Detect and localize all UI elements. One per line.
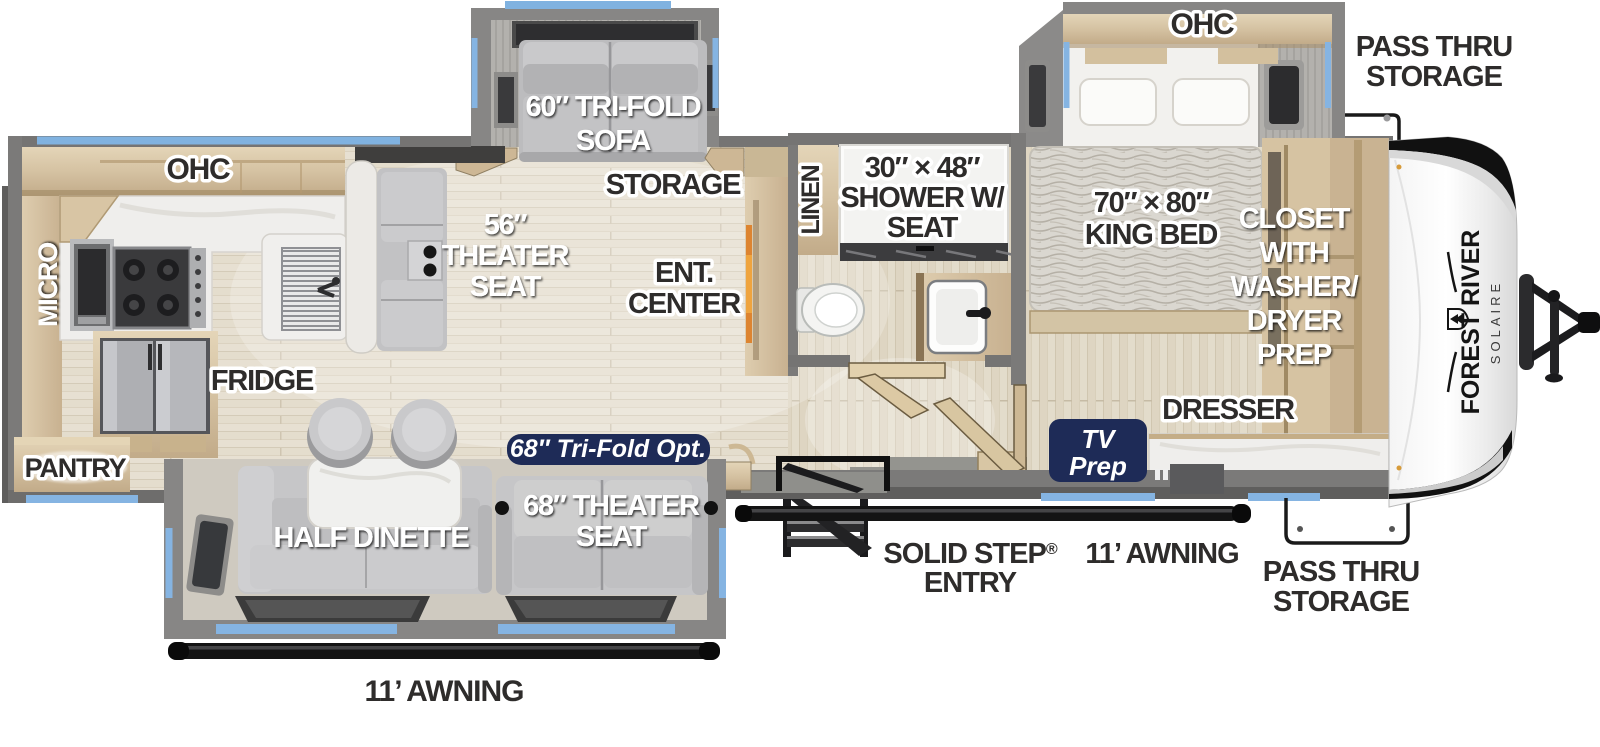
svg-text:SEAT: SEAT: [470, 271, 542, 303]
svg-text:Prep: Prep: [1069, 451, 1127, 481]
svg-text:ENTRY: ENTRY: [924, 567, 1017, 599]
svg-text:SOFA: SOFA: [576, 125, 651, 157]
svg-text:SOLID STEP®: SOLID STEP®: [883, 538, 1057, 570]
svg-text:CENTER: CENTER: [628, 288, 741, 320]
svg-text:60″ TRI-FOLD: 60″ TRI-FOLD: [525, 91, 700, 123]
svg-text:HALF DINETTE: HALF DINETTE: [273, 522, 469, 554]
svg-text:WASHER/: WASHER/: [1231, 271, 1359, 303]
svg-text:WITH: WITH: [1259, 237, 1328, 269]
svg-text:PASS THRU: PASS THRU: [1356, 31, 1512, 63]
svg-text:TV: TV: [1081, 424, 1117, 454]
svg-text:SOLAIRE: SOLAIRE: [1488, 280, 1503, 364]
svg-text:CLOSET: CLOSET: [1239, 203, 1351, 235]
svg-text:OHC: OHC: [166, 153, 230, 186]
svg-text:LINEN: LINEN: [797, 165, 825, 234]
svg-text:KING BED: KING BED: [1085, 219, 1217, 251]
svg-text:68″ Tri-Fold Opt.: 68″ Tri-Fold Opt.: [510, 435, 706, 463]
svg-text:STORAGE: STORAGE: [1366, 61, 1503, 93]
svg-text:11’ AWNING: 11’ AWNING: [365, 675, 524, 708]
svg-text:SEAT: SEAT: [576, 521, 648, 553]
svg-text:STORAGE: STORAGE: [1273, 586, 1410, 618]
svg-text:PANTRY: PANTRY: [25, 453, 127, 483]
svg-text:70″ × 80″: 70″ × 80″: [1094, 187, 1210, 219]
svg-text:PASS THRU: PASS THRU: [1263, 556, 1419, 588]
svg-text:OHC: OHC: [1170, 8, 1234, 41]
svg-text:DRYER: DRYER: [1247, 305, 1343, 337]
svg-text:56″: 56″: [484, 209, 528, 241]
svg-text:11’ AWNING: 11’ AWNING: [1085, 538, 1238, 570]
svg-text:SEAT: SEAT: [887, 212, 959, 244]
svg-text:PREP: PREP: [1257, 339, 1332, 371]
svg-text:MICRO: MICRO: [33, 243, 63, 327]
svg-text:FRIDGE: FRIDGE: [211, 365, 314, 397]
svg-text:DRESSER: DRESSER: [1162, 394, 1295, 426]
svg-text:STORAGE: STORAGE: [606, 169, 741, 201]
svg-text:68″ THEATER: 68″ THEATER: [523, 490, 700, 522]
svg-text:THEATER: THEATER: [442, 240, 570, 272]
svg-text:ENT.: ENT.: [655, 257, 713, 289]
svg-text:SHOWER W/: SHOWER W/: [840, 182, 1004, 214]
svg-text:30″ × 48″: 30″ × 48″: [865, 152, 981, 184]
